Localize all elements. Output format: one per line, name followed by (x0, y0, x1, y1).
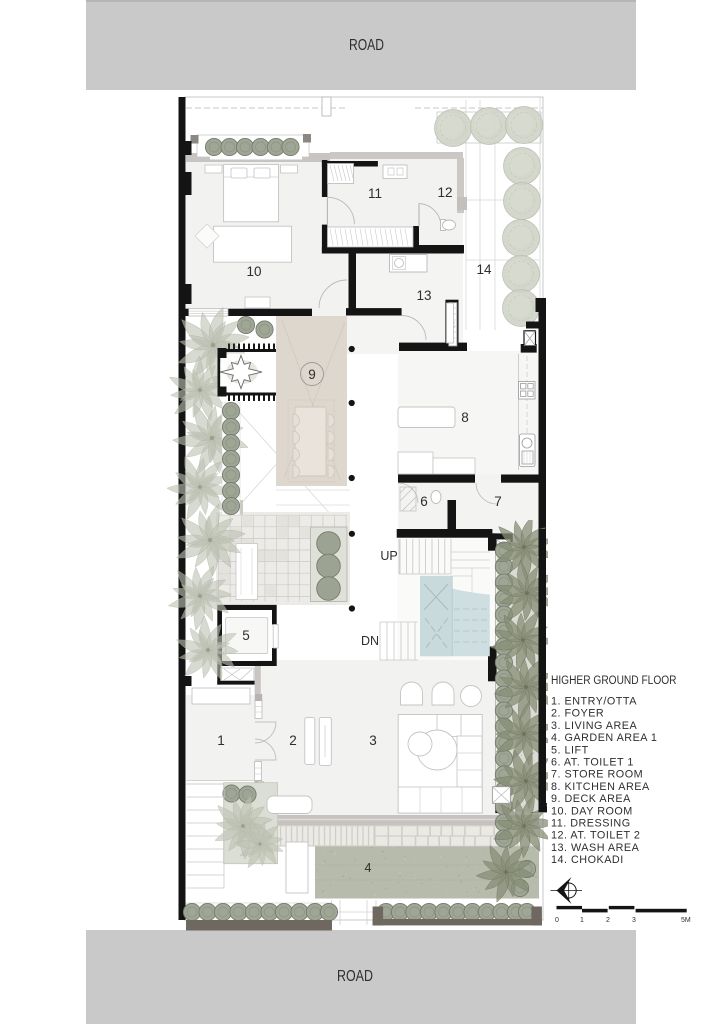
svg-text:11: 11 (368, 186, 382, 201)
svg-text:1: 1 (217, 733, 225, 748)
svg-text:10. DAY ROOM: 10. DAY ROOM (551, 805, 633, 817)
svg-text:4. GARDEN AREA 1: 4. GARDEN AREA 1 (551, 732, 657, 744)
svg-text:4: 4 (365, 861, 372, 875)
svg-text:8: 8 (461, 410, 469, 425)
svg-text:6: 6 (420, 494, 428, 509)
svg-text:12: 12 (437, 185, 452, 200)
svg-text:13: 13 (416, 288, 431, 303)
svg-text:14. CHOKADI: 14. CHOKADI (551, 854, 624, 866)
svg-text:2: 2 (289, 733, 297, 748)
svg-text:9: 9 (308, 367, 316, 382)
svg-text:DN: DN (361, 634, 379, 648)
svg-text:10: 10 (246, 264, 261, 279)
svg-text:1. ENTRY/OTTA: 1. ENTRY/OTTA (551, 696, 637, 708)
svg-text:9. DECK AREA: 9. DECK AREA (551, 793, 631, 805)
svg-text:13. WASH AREA: 13. WASH AREA (551, 842, 640, 854)
svg-text:6. AT. TOILET 1: 6. AT. TOILET 1 (551, 757, 634, 769)
svg-text:5. LIFT: 5. LIFT (551, 744, 589, 756)
svg-text:ROAD: ROAD (349, 37, 384, 54)
svg-text:UP: UP (380, 549, 397, 563)
svg-text:8. KITCHEN AREA: 8. KITCHEN AREA (551, 781, 650, 793)
svg-text:5M: 5M (681, 917, 691, 924)
svg-text:14: 14 (476, 262, 492, 277)
svg-text:3: 3 (369, 733, 377, 748)
svg-text:7: 7 (494, 494, 502, 509)
svg-text:2. FOYER: 2. FOYER (551, 708, 604, 720)
svg-text:ROAD: ROAD (337, 968, 373, 985)
svg-text:1: 1 (580, 917, 584, 924)
svg-text:HIGHER GROUND FLOOR: HIGHER GROUND FLOOR (551, 675, 677, 687)
svg-text:3. LIVING AREA: 3. LIVING AREA (551, 720, 638, 732)
svg-text:7. STORE ROOM: 7. STORE ROOM (551, 769, 643, 781)
svg-text:11. DRESSING: 11. DRESSING (551, 818, 631, 830)
svg-text:5: 5 (242, 628, 250, 643)
svg-text:0: 0 (555, 917, 559, 924)
svg-text:3: 3 (632, 917, 636, 924)
svg-text:12. AT. TOILET 2: 12. AT. TOILET 2 (551, 830, 640, 842)
svg-text:2: 2 (606, 917, 610, 924)
